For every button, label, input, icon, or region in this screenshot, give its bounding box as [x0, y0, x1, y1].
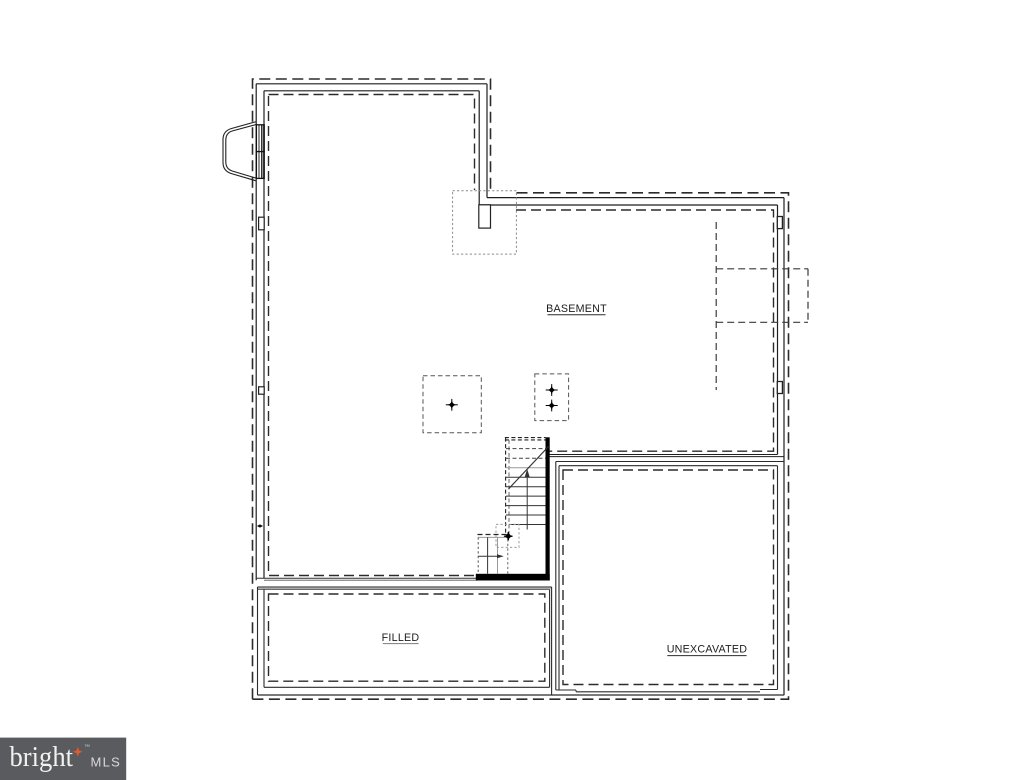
svg-text:BASEMENT: BASEMENT — [546, 303, 607, 315]
svg-text:bright: bright — [10, 741, 74, 773]
svg-text:MLS: MLS — [91, 754, 122, 769]
svg-text:UNEXCAVATED: UNEXCAVATED — [667, 644, 748, 656]
svg-text:FILLED: FILLED — [382, 632, 420, 644]
svg-text:™: ™ — [84, 744, 90, 751]
